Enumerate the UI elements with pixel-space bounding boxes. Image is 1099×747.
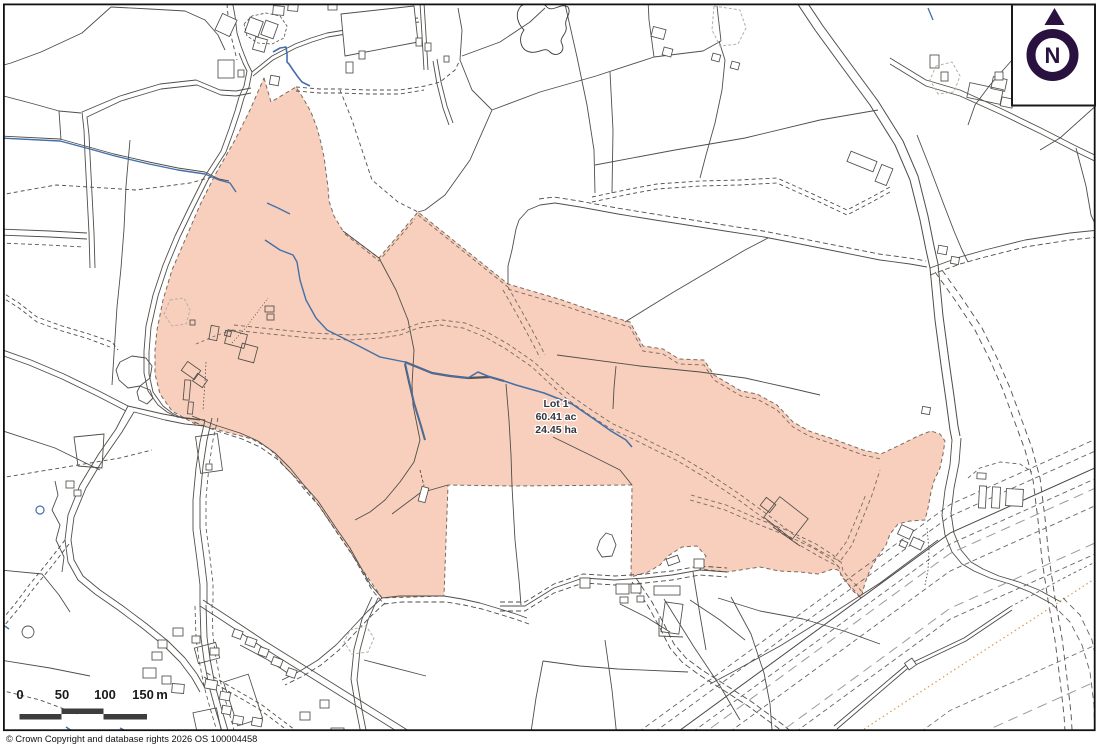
svg-text:50: 50	[55, 687, 69, 702]
svg-text:m: m	[156, 687, 168, 702]
svg-text:24.45 ha: 24.45 ha	[535, 424, 577, 436]
svg-text:150: 150	[132, 687, 154, 702]
svg-text:N: N	[1045, 43, 1061, 68]
svg-text:Lot 1: Lot 1	[543, 398, 568, 410]
svg-text:0: 0	[16, 687, 23, 702]
svg-text:© Crown Copyright and database: © Crown Copyright and database rights 20…	[6, 734, 257, 744]
svg-text:100: 100	[94, 687, 116, 702]
svg-text:60.41 ac: 60.41 ac	[536, 411, 577, 423]
